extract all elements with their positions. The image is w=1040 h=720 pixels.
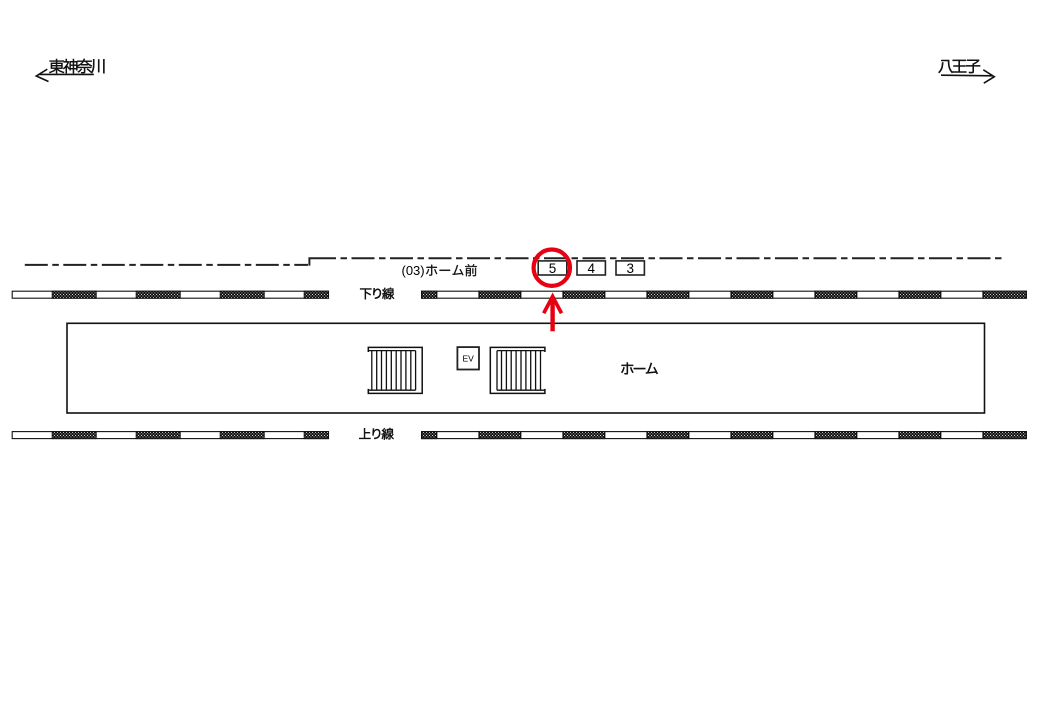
- svg-text:5: 5: [549, 261, 557, 276]
- svg-text:(03): (03): [402, 263, 425, 278]
- svg-text:EV: EV: [463, 353, 475, 363]
- svg-text:4: 4: [587, 261, 595, 276]
- svg-text:3: 3: [626, 261, 634, 276]
